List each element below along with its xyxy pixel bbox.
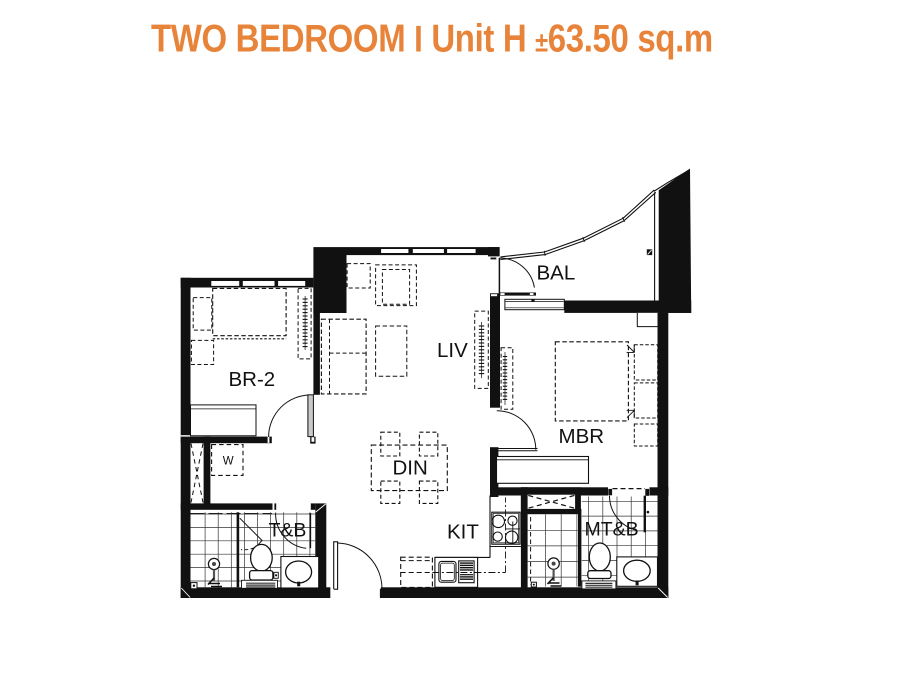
svg-text:KIT: KIT	[447, 520, 479, 543]
svg-text:LIV: LIV	[437, 339, 468, 362]
svg-text:BR-2: BR-2	[229, 368, 276, 391]
svg-text:MBR: MBR	[559, 425, 605, 448]
svg-text:T&B: T&B	[269, 519, 307, 541]
svg-text:W: W	[223, 455, 234, 467]
svg-text:MT&B: MT&B	[585, 518, 639, 540]
svg-text:BAL: BAL	[537, 262, 576, 285]
svg-text:DIN: DIN	[393, 456, 428, 479]
svg-text:TWO BEDROOM I Unit H ±63.50 sq: TWO BEDROOM I Unit H ±63.50 sq.m	[151, 16, 713, 60]
